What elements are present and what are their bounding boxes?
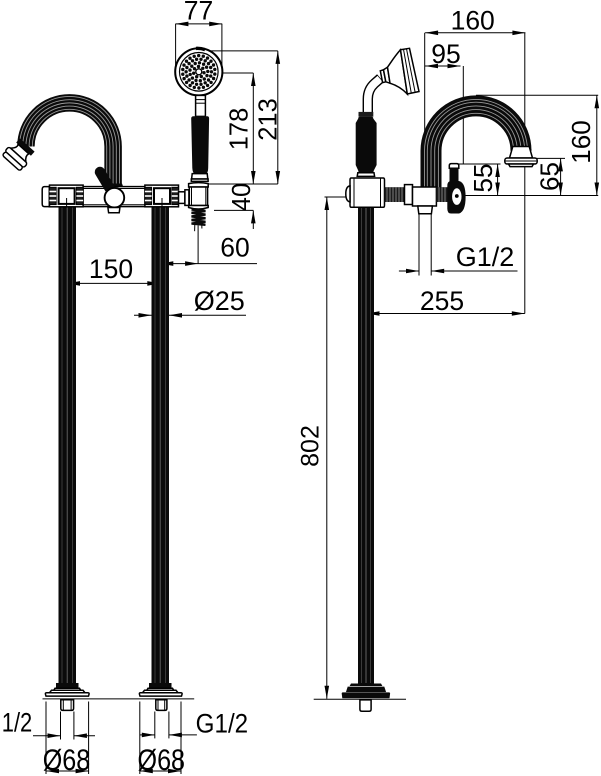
svg-text:G1/2: G1/2 [196, 709, 249, 739]
svg-text:150: 150 [89, 254, 133, 284]
svg-text:255: 255 [420, 286, 464, 316]
svg-text:1/2: 1/2 [2, 708, 33, 738]
svg-text:40: 40 [228, 183, 256, 211]
svg-text:160: 160 [451, 6, 495, 36]
svg-text:60: 60 [220, 233, 249, 263]
svg-text:Ø25: Ø25 [194, 286, 245, 316]
svg-text:802: 802 [297, 425, 325, 467]
svg-text:55: 55 [468, 164, 498, 193]
svg-text:178: 178 [226, 108, 254, 151]
svg-text:G1/2: G1/2 [456, 242, 515, 272]
svg-text:160: 160 [566, 120, 596, 163]
